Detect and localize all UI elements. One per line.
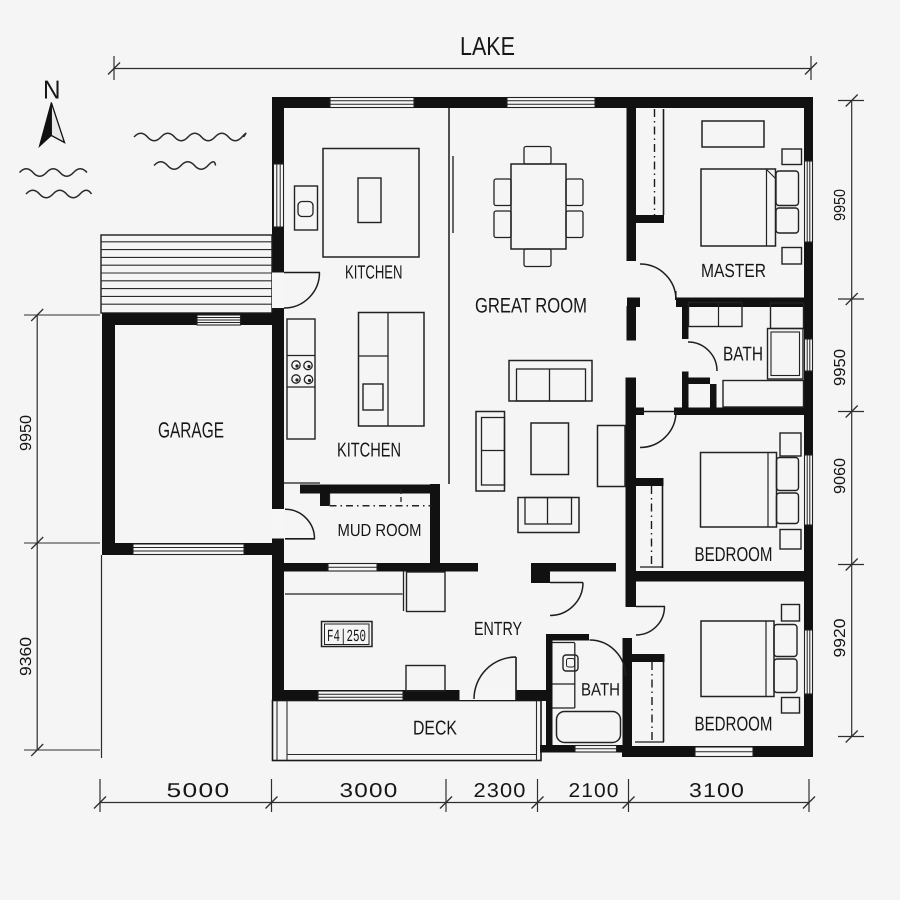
svg-text:3100: 3100 bbox=[689, 780, 745, 802]
svg-text:KITCHEN: KITCHEN bbox=[345, 263, 403, 284]
svg-text:9950: 9950 bbox=[18, 415, 35, 451]
svg-text:2100: 2100 bbox=[569, 780, 620, 802]
svg-text:9950: 9950 bbox=[832, 189, 849, 221]
svg-text:5000: 5000 bbox=[167, 780, 231, 802]
svg-text:BEDROOM: BEDROOM bbox=[695, 544, 773, 566]
svg-text:N: N bbox=[43, 75, 61, 105]
svg-text:MUD ROOM: MUD ROOM bbox=[338, 520, 422, 540]
svg-text:F4|250: F4|250 bbox=[327, 628, 366, 647]
svg-text:BEDROOM: BEDROOM bbox=[695, 714, 773, 736]
svg-text:GREAT ROOM: GREAT ROOM bbox=[475, 295, 587, 318]
svg-text:LAKE: LAKE bbox=[460, 31, 515, 61]
svg-text:MASTER: MASTER bbox=[701, 261, 766, 282]
svg-text:GARAGE: GARAGE bbox=[158, 418, 224, 443]
svg-text:9060: 9060 bbox=[832, 458, 849, 494]
svg-text:9920: 9920 bbox=[832, 618, 849, 657]
svg-text:3000: 3000 bbox=[340, 780, 399, 802]
svg-text:BATH: BATH bbox=[581, 680, 620, 700]
svg-text:DECK: DECK bbox=[413, 718, 458, 740]
svg-text:ENTRY: ENTRY bbox=[474, 619, 522, 640]
svg-text:2300: 2300 bbox=[474, 780, 527, 802]
svg-text:BATH: BATH bbox=[723, 344, 763, 366]
svg-text:KITCHEN: KITCHEN bbox=[337, 440, 401, 462]
svg-text:9360: 9360 bbox=[18, 637, 35, 676]
svg-text:9950: 9950 bbox=[832, 349, 849, 386]
